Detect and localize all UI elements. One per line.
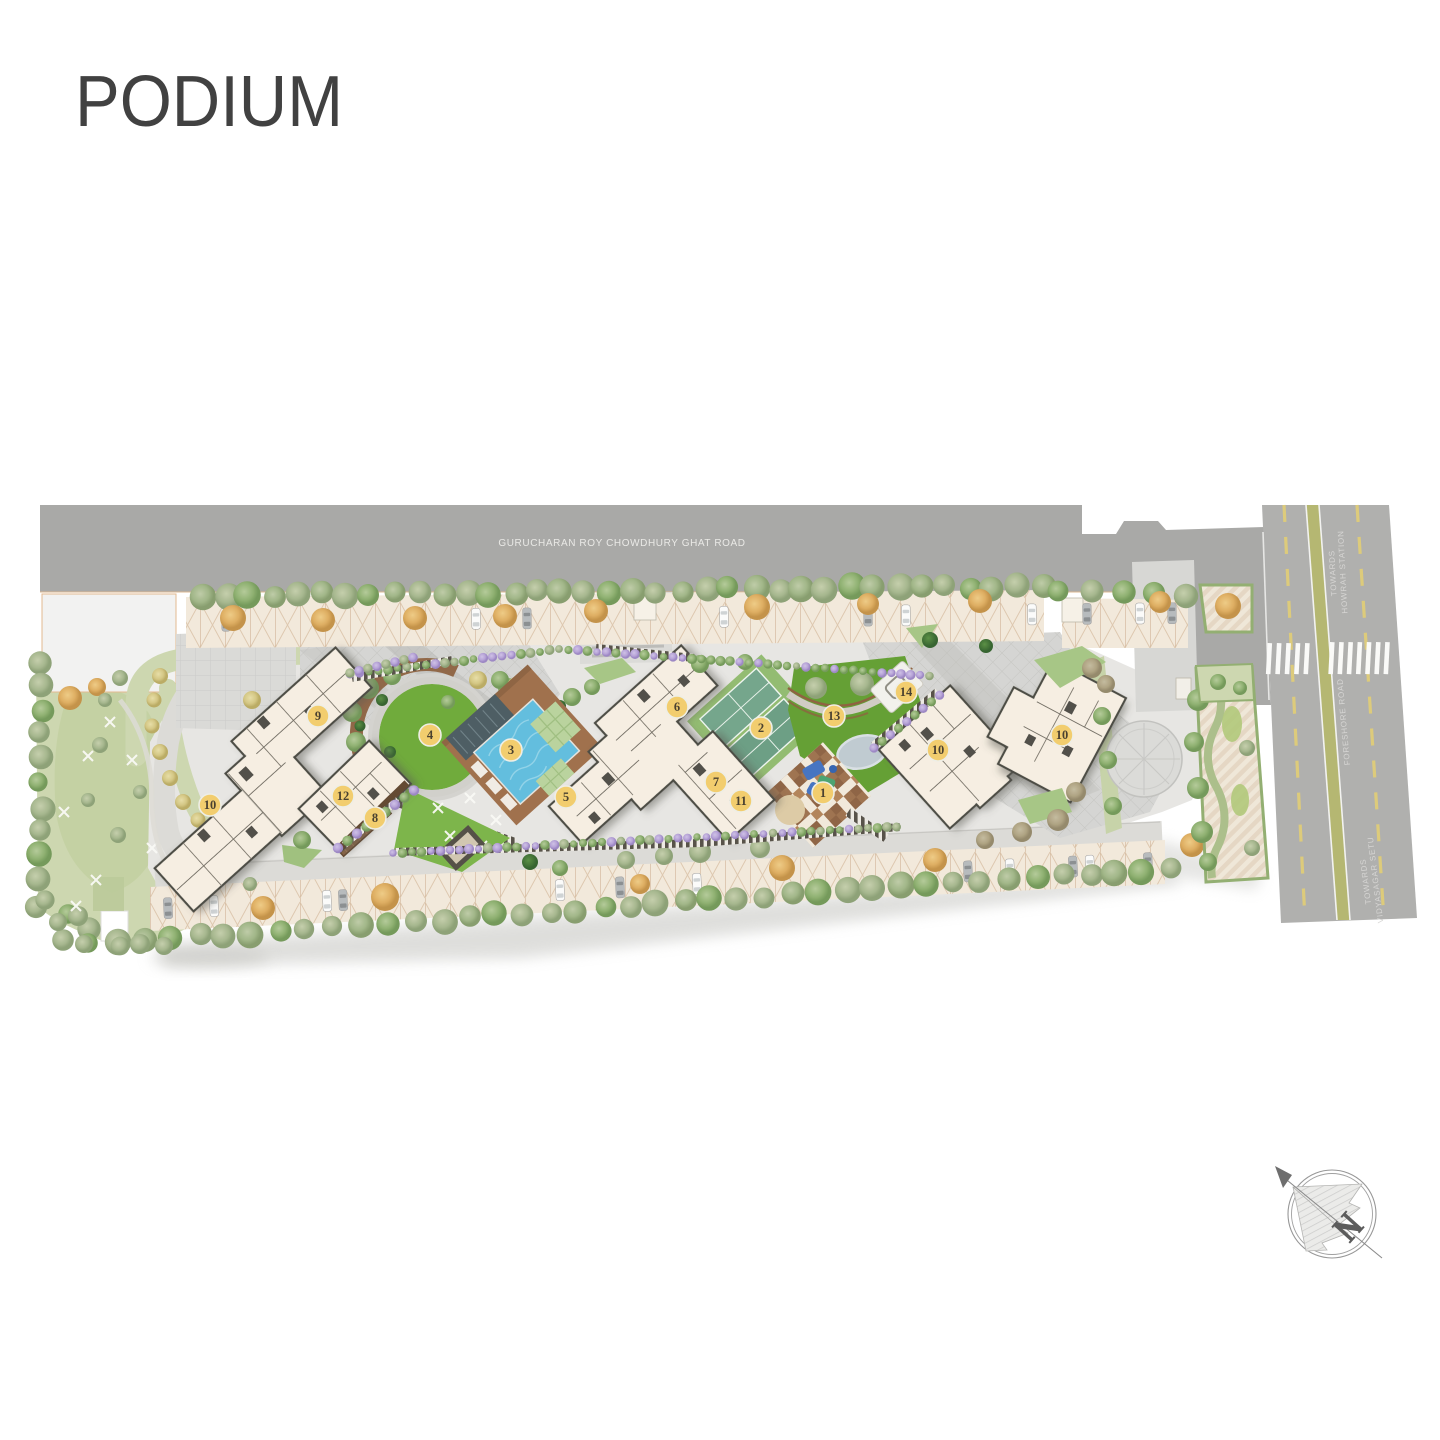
svg-text:3: 3 — [508, 743, 514, 757]
svg-text:13: 13 — [828, 709, 841, 723]
svg-text:10: 10 — [204, 798, 217, 812]
svg-text:8: 8 — [372, 811, 378, 825]
svg-text:PODIUM: PODIUM — [75, 62, 343, 142]
svg-text:11: 11 — [735, 794, 747, 808]
svg-text:5: 5 — [563, 790, 569, 804]
svg-text:10: 10 — [1056, 728, 1069, 742]
svg-text:2: 2 — [758, 721, 764, 735]
svg-text:6: 6 — [674, 700, 680, 714]
svg-text:1: 1 — [820, 786, 826, 800]
svg-text:9: 9 — [315, 709, 321, 723]
svg-text:4: 4 — [427, 728, 434, 742]
svg-text:10: 10 — [932, 743, 945, 757]
svg-text:12: 12 — [337, 789, 350, 803]
svg-text:14: 14 — [900, 685, 913, 699]
svg-text:7: 7 — [713, 775, 719, 789]
